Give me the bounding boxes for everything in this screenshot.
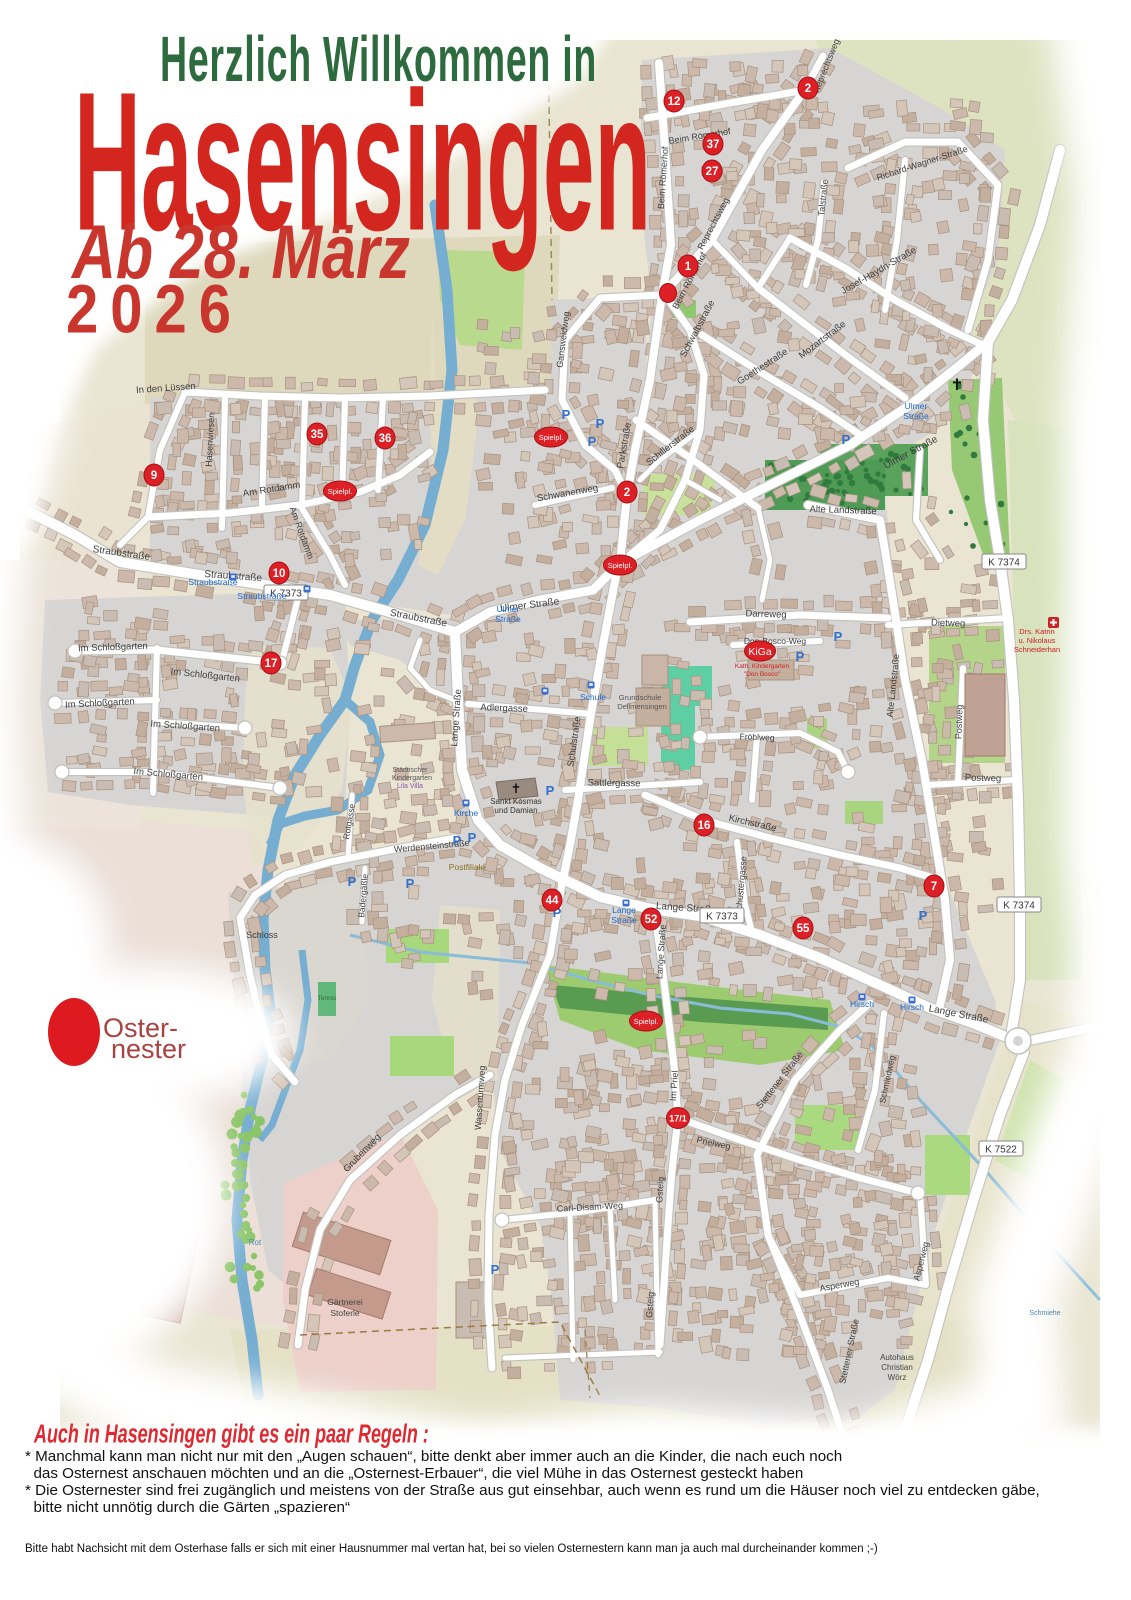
svg-text:Darreweg: Darreweg	[745, 608, 787, 620]
svg-text:36: 36	[379, 433, 392, 445]
svg-text:KiGa: KiGa	[748, 646, 772, 658]
svg-text:✝: ✝	[950, 377, 963, 394]
svg-text:P: P	[546, 783, 555, 798]
svg-text:Kirche: Kirche	[454, 808, 478, 818]
svg-text:Alte Landstraße: Alte Landstraße	[809, 504, 876, 517]
svg-text:K 7374: K 7374	[1003, 901, 1035, 912]
svg-text:Schmiehe: Schmiehe	[1029, 1310, 1060, 1317]
svg-text:Christian: Christian	[881, 1363, 913, 1372]
svg-text:Dietweg: Dietweg	[931, 617, 966, 629]
svg-text:44: 44	[546, 895, 559, 907]
svg-text:Postweg: Postweg	[965, 773, 1002, 785]
svg-text:Autohaus: Autohaus	[880, 1353, 914, 1362]
svg-text:1: 1	[685, 261, 692, 273]
svg-text:Wörz: Wörz	[888, 1373, 907, 1382]
svg-text:Postweg: Postweg	[953, 704, 964, 739]
svg-text:Straße: Straße	[611, 915, 637, 925]
svg-text:und Damian: und Damian	[494, 806, 537, 815]
svg-text:12: 12	[668, 96, 681, 108]
svg-text:Kath. Kindergarten: Kath. Kindergarten	[735, 663, 790, 670]
svg-text:Ulmer: Ulmer	[497, 604, 520, 614]
svg-text:17: 17	[265, 658, 278, 670]
svg-text:Rot: Rot	[249, 1238, 262, 1247]
svg-text:P: P	[491, 1262, 500, 1277]
svg-text:2: 2	[624, 487, 630, 499]
svg-text:16: 16	[698, 820, 711, 832]
svg-text:P: P	[468, 830, 477, 845]
svg-text:Postfiliale: Postfiliale	[449, 862, 486, 872]
svg-text:Im Priel: Im Priel	[668, 1070, 680, 1101]
svg-text:Sankt Kosmas: Sankt Kosmas	[490, 797, 542, 806]
svg-text:35: 35	[311, 429, 324, 441]
svg-text:P: P	[834, 629, 843, 644]
svg-text:Schloss: Schloss	[246, 930, 278, 940]
svg-text:Schule: Schule	[580, 692, 606, 702]
svg-text:u. Nikolaus: u. Nikolaus	[1018, 636, 1055, 645]
svg-text:Gärtnerei: Gärtnerei	[327, 1297, 363, 1307]
svg-text:Grundschule: Grundschule	[619, 693, 662, 702]
svg-text:Spielpl.: Spielpl.	[634, 1017, 659, 1026]
svg-text:Spielpl.: Spielpl.	[608, 561, 633, 570]
svg-text:P: P	[796, 649, 805, 664]
svg-text:P: P	[596, 416, 605, 431]
svg-text:Drs. Katrin: Drs. Katrin	[1019, 627, 1054, 636]
svg-text:Gsteig: Gsteig	[644, 1291, 656, 1318]
svg-text:9: 9	[151, 470, 157, 482]
svg-text:P: P	[348, 874, 357, 889]
svg-text:Sattlergasse: Sattlergasse	[588, 778, 641, 790]
svg-text:Spielpl.: Spielpl.	[539, 433, 564, 442]
svg-text:P: P	[588, 434, 597, 449]
svg-text:P: P	[842, 432, 851, 447]
svg-text:2: 2	[805, 83, 811, 95]
svg-text:Lila Villa: Lila Villa	[397, 783, 423, 790]
svg-text:Stoferle: Stoferle	[330, 1308, 360, 1318]
svg-text:Kindergarten: Kindergarten	[392, 775, 432, 782]
svg-text:10: 10	[273, 568, 286, 580]
svg-text:P: P	[919, 908, 928, 923]
svg-text:Straße: Straße	[903, 411, 929, 421]
svg-text:Spielpl.: Spielpl.	[328, 487, 353, 496]
svg-text:55: 55	[797, 923, 810, 935]
svg-text:K 7522: K 7522	[985, 1145, 1017, 1156]
svg-text:P: P	[406, 876, 415, 891]
svg-text:52: 52	[645, 914, 658, 926]
svg-text:Fröblweg: Fröblweg	[739, 731, 775, 742]
svg-text:Schneiderhan: Schneiderhan	[1014, 645, 1060, 654]
svg-text:K 7373: K 7373	[706, 912, 738, 923]
svg-text:17/1: 17/1	[669, 1114, 687, 1124]
svg-text:Dellmensingen: Dellmensingen	[617, 702, 667, 711]
svg-text:Gsteig: Gsteig	[654, 1176, 666, 1203]
svg-text:K 7374: K 7374	[988, 558, 1020, 569]
svg-text:Straubstraße: Straubstraße	[237, 591, 286, 601]
svg-text:Straße: Straße	[495, 614, 521, 624]
svg-text:Tennis: Tennis	[318, 995, 338, 1002]
svg-text:✝: ✝	[511, 781, 522, 796]
svg-text:Städtischer: Städtischer	[392, 767, 428, 774]
svg-text:7: 7	[931, 881, 937, 893]
svg-text:Ulmer: Ulmer	[905, 401, 928, 411]
svg-text:27: 27	[706, 166, 719, 178]
svg-text:P: P	[562, 407, 571, 422]
svg-text:"Don Bosco": "Don Bosco"	[744, 671, 781, 678]
svg-text:P: P	[453, 833, 462, 848]
svg-text:37: 37	[707, 139, 720, 151]
svg-text:Adlergasse: Adlergasse	[480, 702, 528, 715]
